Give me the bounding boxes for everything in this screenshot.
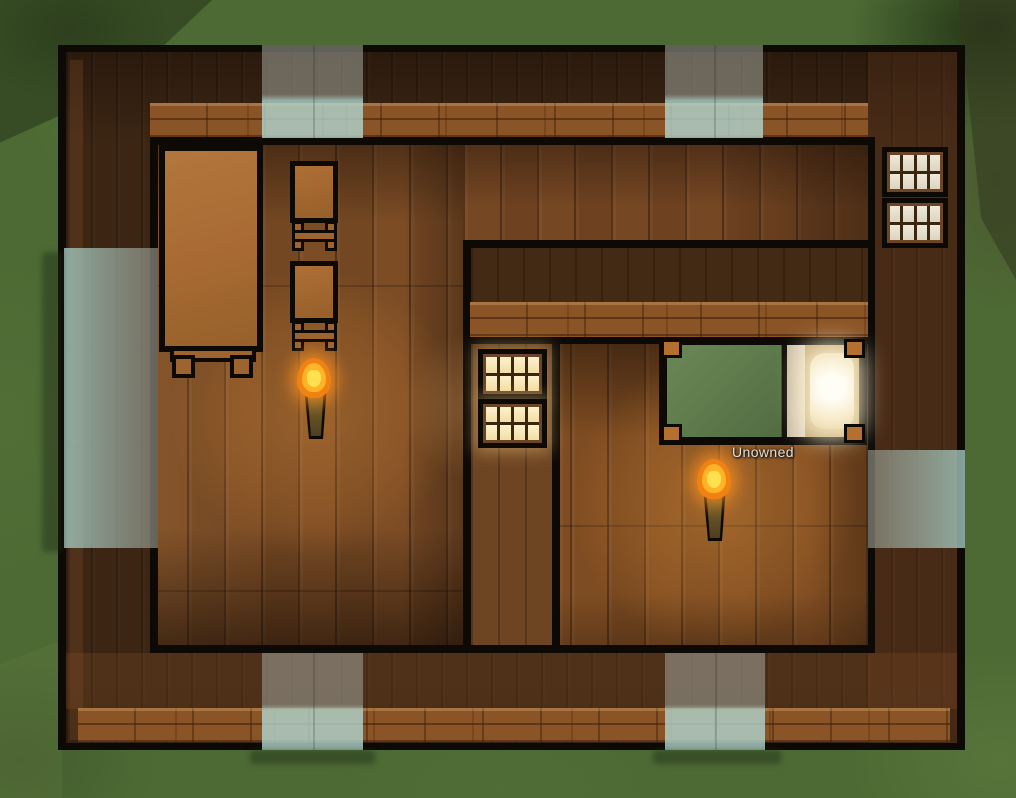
skylight-strip-bottom-left[interactable] <box>262 653 363 750</box>
window-frame <box>887 203 943 243</box>
window-frame <box>483 354 542 394</box>
bed[interactable] <box>659 337 867 445</box>
window-ground-shadow <box>653 750 781 764</box>
skylight-strip-top-right[interactable] <box>665 45 763 138</box>
table-leg <box>172 355 195 378</box>
table-leg <box>230 355 253 378</box>
stool-leg-bar <box>292 330 337 342</box>
floor-shadow-overlay <box>463 137 868 248</box>
stool-1[interactable] <box>290 161 338 223</box>
window-right-wall-lower[interactable] <box>882 198 948 248</box>
stool-leg-bar <box>292 230 337 242</box>
window-panes <box>890 206 940 240</box>
window-frame <box>887 152 943 192</box>
wall-brick-face-bottom <box>78 708 950 742</box>
window-panes <box>486 357 539 391</box>
stool-2[interactable] <box>290 261 338 323</box>
window-right-wall-upper[interactable] <box>882 147 948 197</box>
window-panes <box>890 155 940 189</box>
bed-post <box>844 424 865 443</box>
torch-handle <box>306 393 325 436</box>
bedroom-north-wall <box>463 240 868 344</box>
bed-post <box>661 424 682 443</box>
wall-edge-line <box>150 137 868 145</box>
window-frame <box>483 404 542 443</box>
skylight-strip-left-wall[interactable] <box>64 248 158 548</box>
wall-brick-face <box>470 302 868 337</box>
torch-flame-icon <box>697 459 731 499</box>
bed-post <box>844 339 865 358</box>
window-panes <box>486 407 539 440</box>
table[interactable] <box>159 145 263 352</box>
grass-light-patch <box>0 640 62 798</box>
bed-blanket <box>667 345 782 437</box>
torch-handle <box>705 495 724 538</box>
torch-flame-icon <box>297 358 331 398</box>
bed-pillow <box>810 353 854 429</box>
bed-sheet <box>787 345 806 437</box>
window-ground-shadow <box>250 750 375 764</box>
window-bedroom-wall-upper[interactable] <box>478 349 547 399</box>
wall-wood-body <box>471 248 868 304</box>
skylight-strip-top-left[interactable] <box>262 45 363 138</box>
bed-post <box>661 339 682 358</box>
wall-shading <box>66 653 957 709</box>
window-bedroom-wall-lower[interactable] <box>478 399 547 448</box>
wall-edge-line <box>868 137 875 653</box>
game-viewport: Unowned <box>0 0 1016 798</box>
bed-ownership-label: Unowned <box>732 444 794 460</box>
skylight-strip-bottom-right[interactable] <box>665 653 765 750</box>
window-ground-shadow <box>42 252 62 552</box>
skylight-strip-right-wall[interactable] <box>868 450 965 548</box>
